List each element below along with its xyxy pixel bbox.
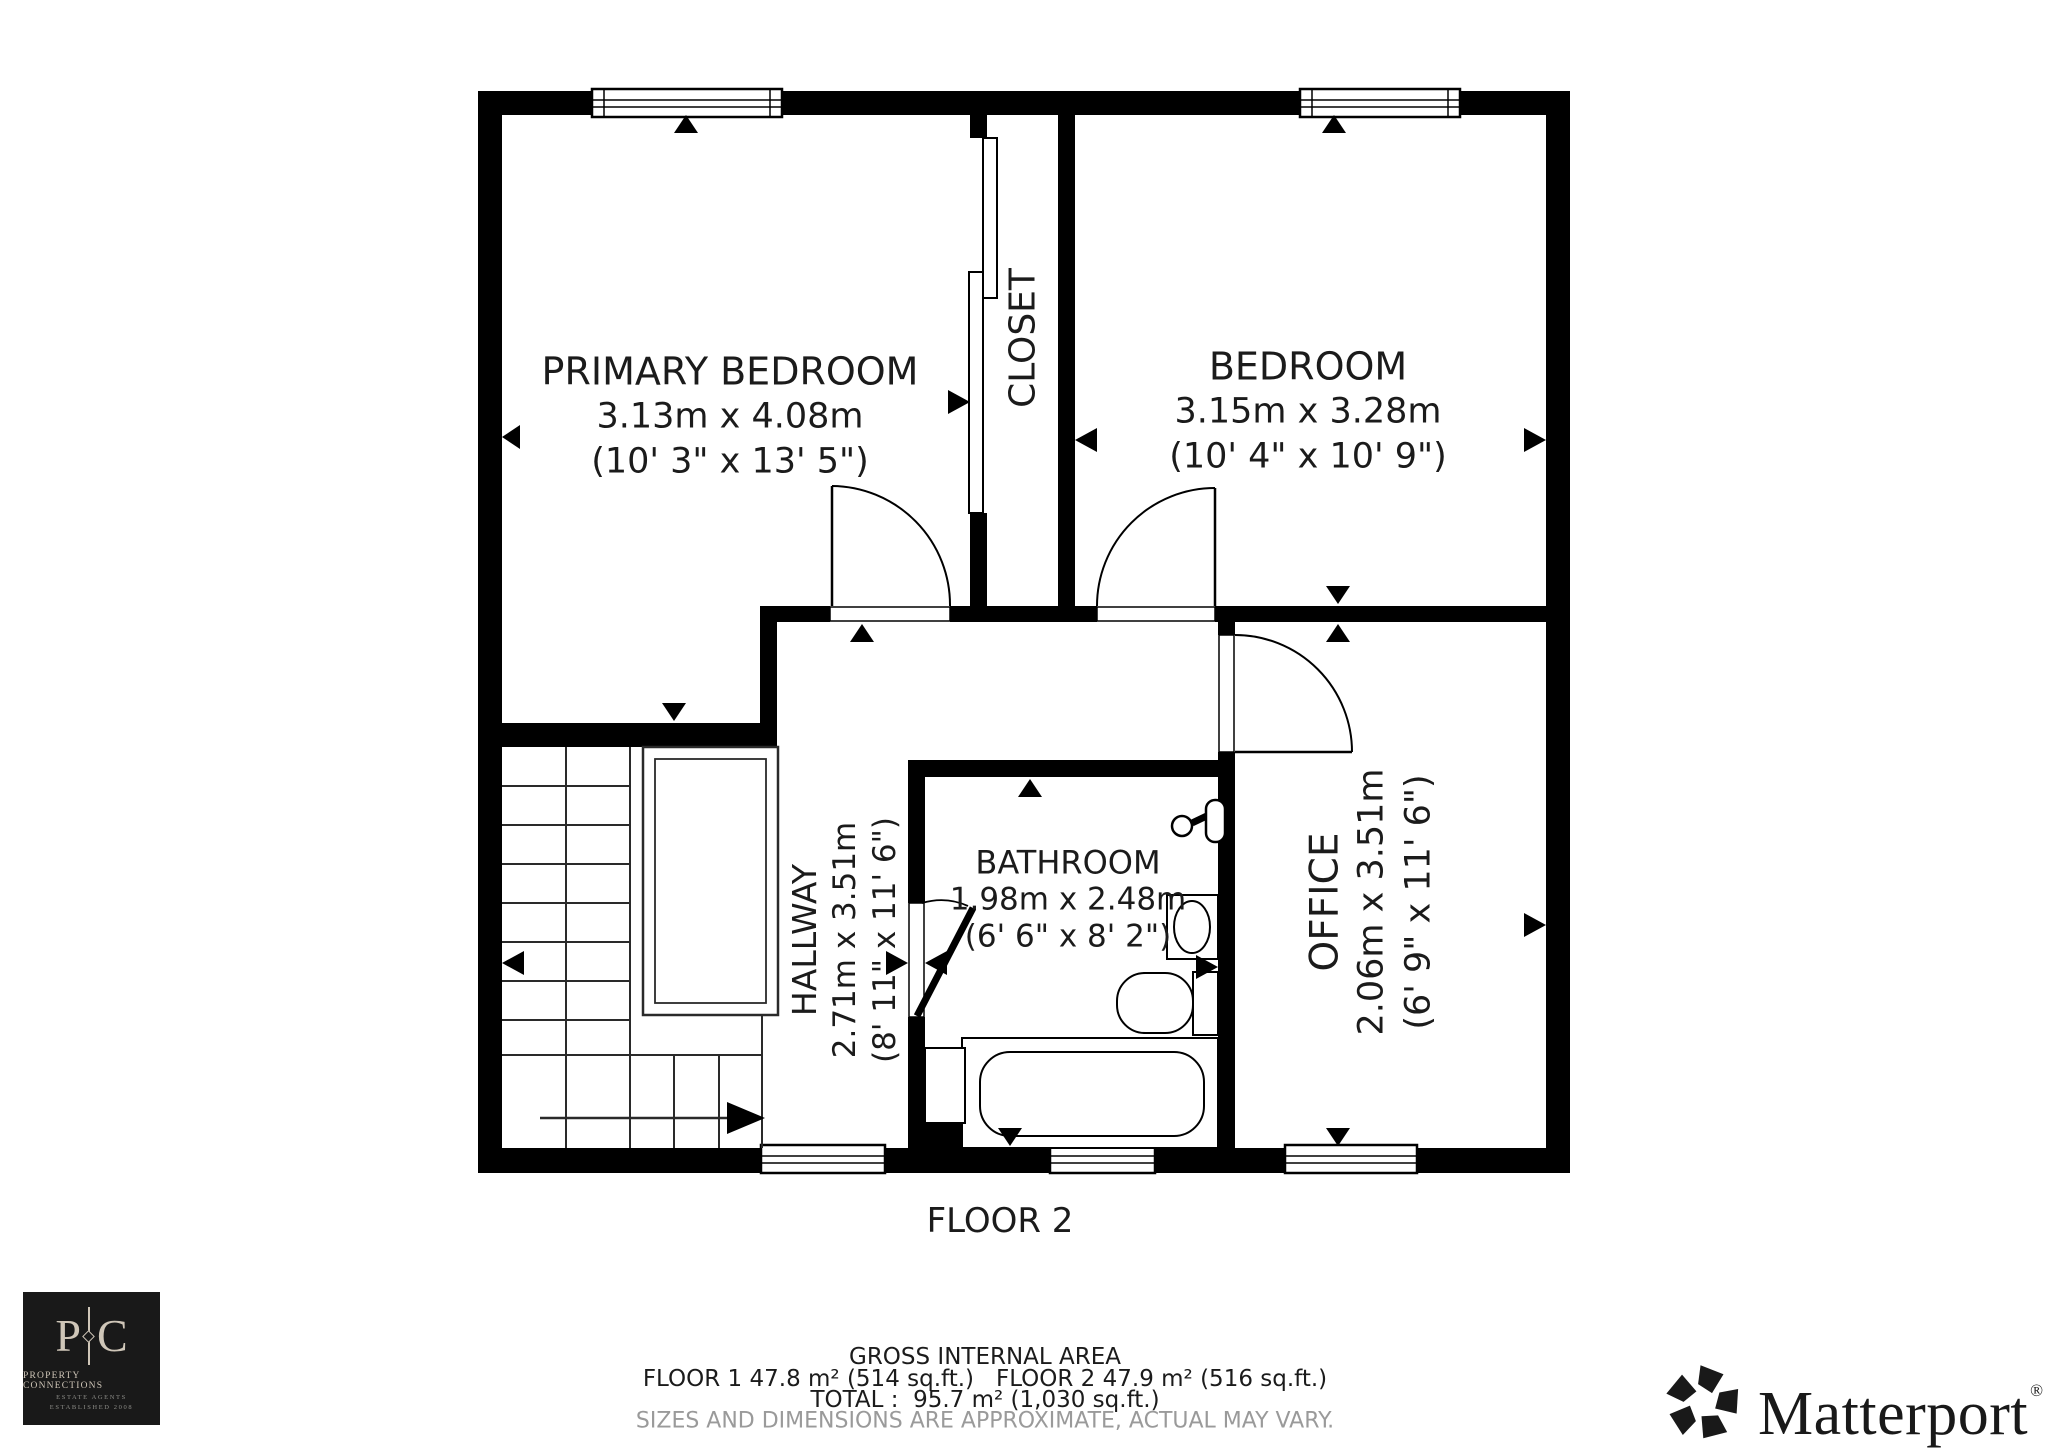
hallway-label-block: HALLWAY 2.71m x 3.51m (8' 11" x 11' 6") [785,817,905,1063]
hallway-dims-metric: 2.71m x 3.51m [825,817,865,1063]
primary-bedroom-dims-metric: 3.13m x 4.08m [596,395,863,440]
door-primary-bedroom [830,486,950,621]
window-bottom-bathroom [1050,1145,1155,1173]
bedroom-dims-imperial: (10' 4" x 10' 9") [1169,435,1447,480]
primary-bedroom-label: PRIMARY BEDROOM [542,350,919,395]
bedroom-label: BEDROOM [1209,345,1407,390]
agency-initial-left: P [55,1313,81,1359]
stair-direction-arrow [540,1102,765,1134]
office-label-block: OFFICE 2.06m x 3.51m (6' 9" x 11' 6") [1302,768,1443,1035]
window-top-primary-bedroom [592,89,782,117]
bathroom-dims-imperial: (6' 6" x 8' 2") [965,919,1171,956]
agency-subline-2: ESTABLISHED 2008 [50,1404,133,1411]
matterport-name: Matterport [1758,1380,2028,1448]
stair-void [643,747,778,1015]
matterport-wordmark: Matterport® [1758,1348,2044,1448]
bedroom-dims-metric: 3.15m x 3.28m [1174,390,1441,435]
matterport-logo: Matterport® [1662,1348,2044,1448]
office-label: OFFICE [1302,768,1349,1035]
agency-initial-right: C [97,1313,128,1359]
bathroom-label: BATHROOM [975,845,1160,882]
door-bedroom [1097,488,1215,621]
agency-logo: P C PROPERTY CONNECTIONS ESTATE AGENTS E… [23,1292,160,1425]
bathroom-dims-metric: 1.98m x 2.48m [950,882,1187,919]
matterport-pinwheel-icon [1662,1362,1744,1444]
door-office [1219,635,1352,752]
closet-sliding-doors [969,138,997,513]
floor-label: FLOOR 2 [927,1201,1074,1241]
agency-initials: P C [55,1307,127,1365]
staircase [502,747,778,1148]
window-bottom-hallway [761,1145,885,1173]
agency-divider-icon [88,1307,90,1365]
window-bottom-office [1285,1145,1417,1173]
bathroom-niche [925,1048,965,1123]
office-dims-metric: 2.06m x 3.51m [1349,768,1396,1035]
toilet-icon [1117,972,1218,1035]
window-top-bedroom [1300,89,1460,117]
faucet-icon [1172,800,1225,842]
closet-label: CLOSET [1003,268,1044,408]
hallway-label: HALLWAY [785,817,825,1063]
agency-name: PROPERTY CONNECTIONS [23,1371,160,1391]
primary-bedroom-dims-imperial: (10' 3" x 13' 5") [591,440,869,485]
agency-subline-1: ESTATE AGENTS [56,1394,127,1401]
hallway-dims-imperial: (8' 11" x 11' 6") [865,817,905,1063]
registered-trademark-icon: ® [2030,1381,2043,1400]
disclaimer-text: SIZES AND DIMENSIONS ARE APPROXIMATE, AC… [636,1409,1334,1434]
office-dims-imperial: (6' 9" x 11' 6") [1396,768,1443,1035]
floor-plan-page: PRIMARY BEDROOM 3.13m x 4.08m (10' 3" x … [0,0,2048,1448]
